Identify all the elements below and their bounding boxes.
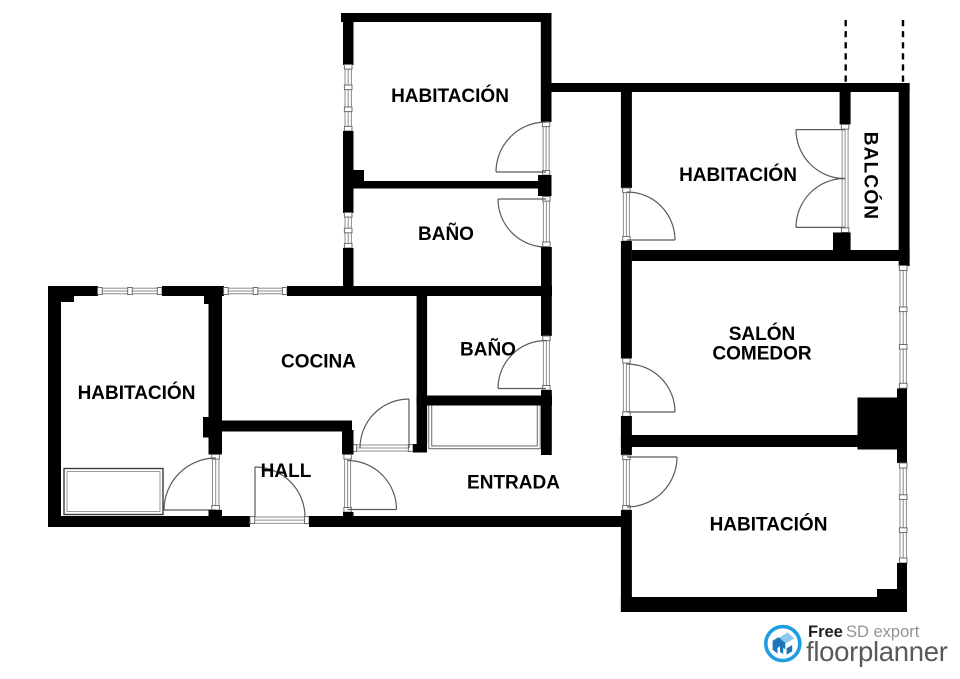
svg-text:BAÑO: BAÑO [418,223,474,245]
svg-text:COMEDOR: COMEDOR [712,344,812,365]
svg-text:BALCÓN: BALCÓN [860,132,882,220]
svg-text:HABITACIÓN: HABITACIÓN [679,164,797,186]
svg-text:HALL: HALL [261,461,312,482]
svg-text:HABITACIÓN: HABITACIÓN [710,514,828,536]
svg-text:SALÓN: SALÓN [729,323,796,345]
svg-text:floorplanner: floorplanner [806,636,948,667]
svg-text:HABITACIÓN: HABITACIÓN [391,85,509,107]
svg-text:ENTRADA: ENTRADA [467,473,560,494]
svg-text:BAÑO: BAÑO [460,339,516,361]
svg-text:HABITACIÓN: HABITACIÓN [78,382,196,404]
svg-text:COCINA: COCINA [281,352,356,373]
